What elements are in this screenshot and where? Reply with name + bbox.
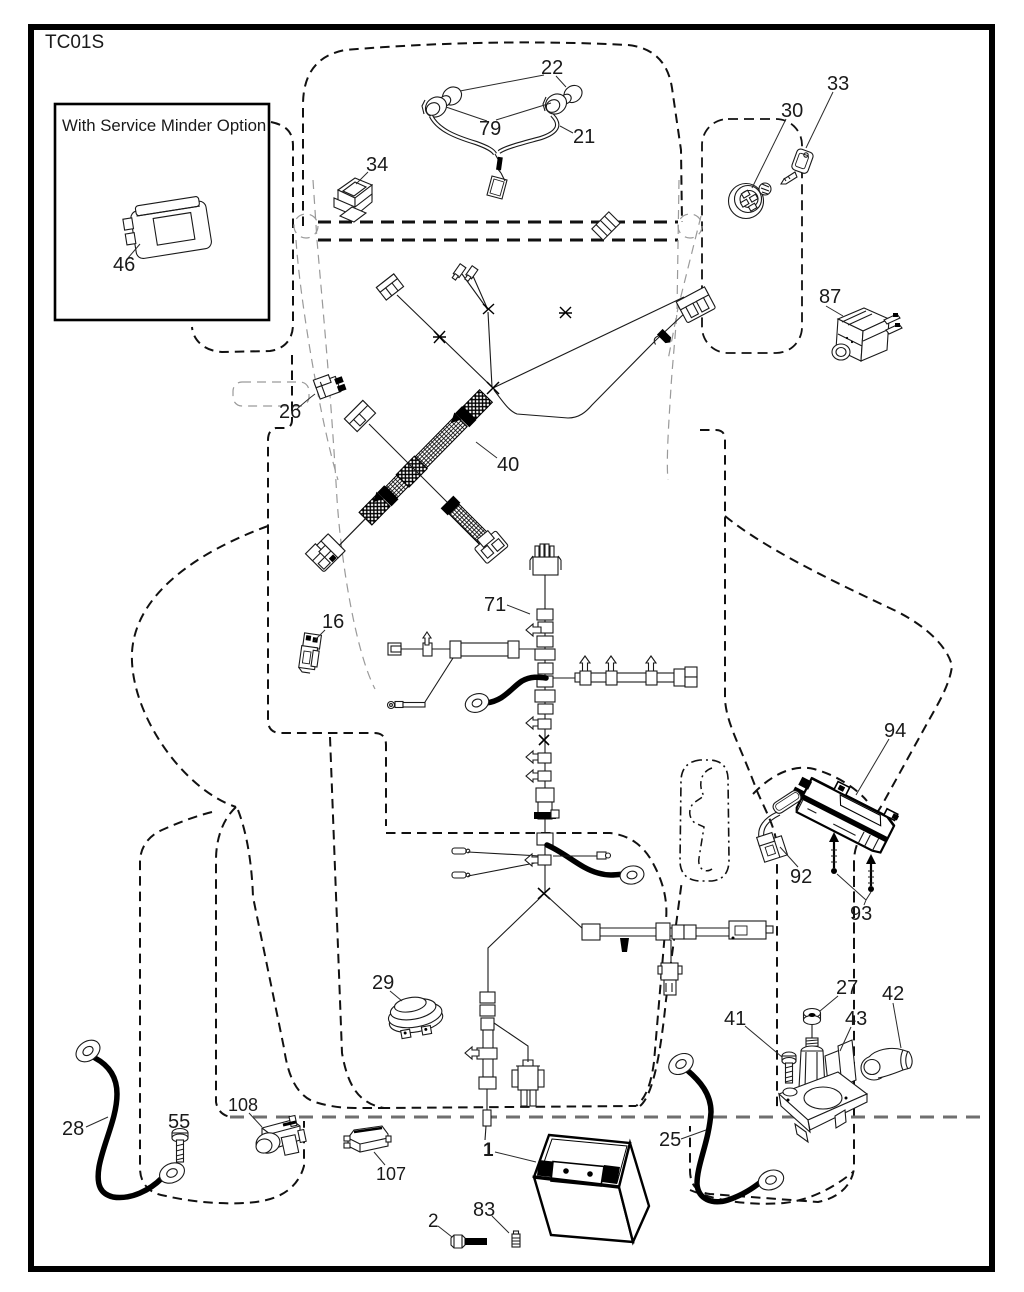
svg-text:41: 41 [724,1008,746,1030]
svg-text:27: 27 [836,977,858,999]
svg-text:87: 87 [819,286,841,308]
svg-text:16: 16 [322,611,344,633]
svg-text:21: 21 [573,126,595,148]
svg-text:34: 34 [366,154,388,176]
svg-text:83: 83 [473,1199,495,1221]
svg-text:2: 2 [428,1211,439,1232]
svg-text:55: 55 [168,1111,190,1133]
svg-text:94: 94 [884,720,906,742]
svg-text:79: 79 [479,118,501,140]
svg-text:107: 107 [376,1164,406,1184]
svg-text:With Service Minder Option: With Service Minder Option [62,116,266,135]
svg-text:43: 43 [845,1008,867,1030]
svg-text:TC01S: TC01S [45,32,104,53]
svg-text:71: 71 [484,594,506,616]
svg-text:93: 93 [850,903,872,925]
svg-text:26: 26 [279,401,301,423]
svg-text:1: 1 [483,1140,494,1161]
svg-text:25: 25 [659,1129,681,1151]
svg-text:46: 46 [113,254,135,276]
svg-text:92: 92 [790,866,812,888]
svg-text:108: 108 [228,1095,258,1115]
svg-text:30: 30 [781,100,803,122]
svg-text:42: 42 [882,983,904,1005]
svg-text:40: 40 [497,454,519,476]
svg-text:33: 33 [827,73,849,95]
svg-text:28: 28 [62,1118,84,1140]
svg-text:22: 22 [541,57,563,79]
svg-text:29: 29 [372,972,394,994]
